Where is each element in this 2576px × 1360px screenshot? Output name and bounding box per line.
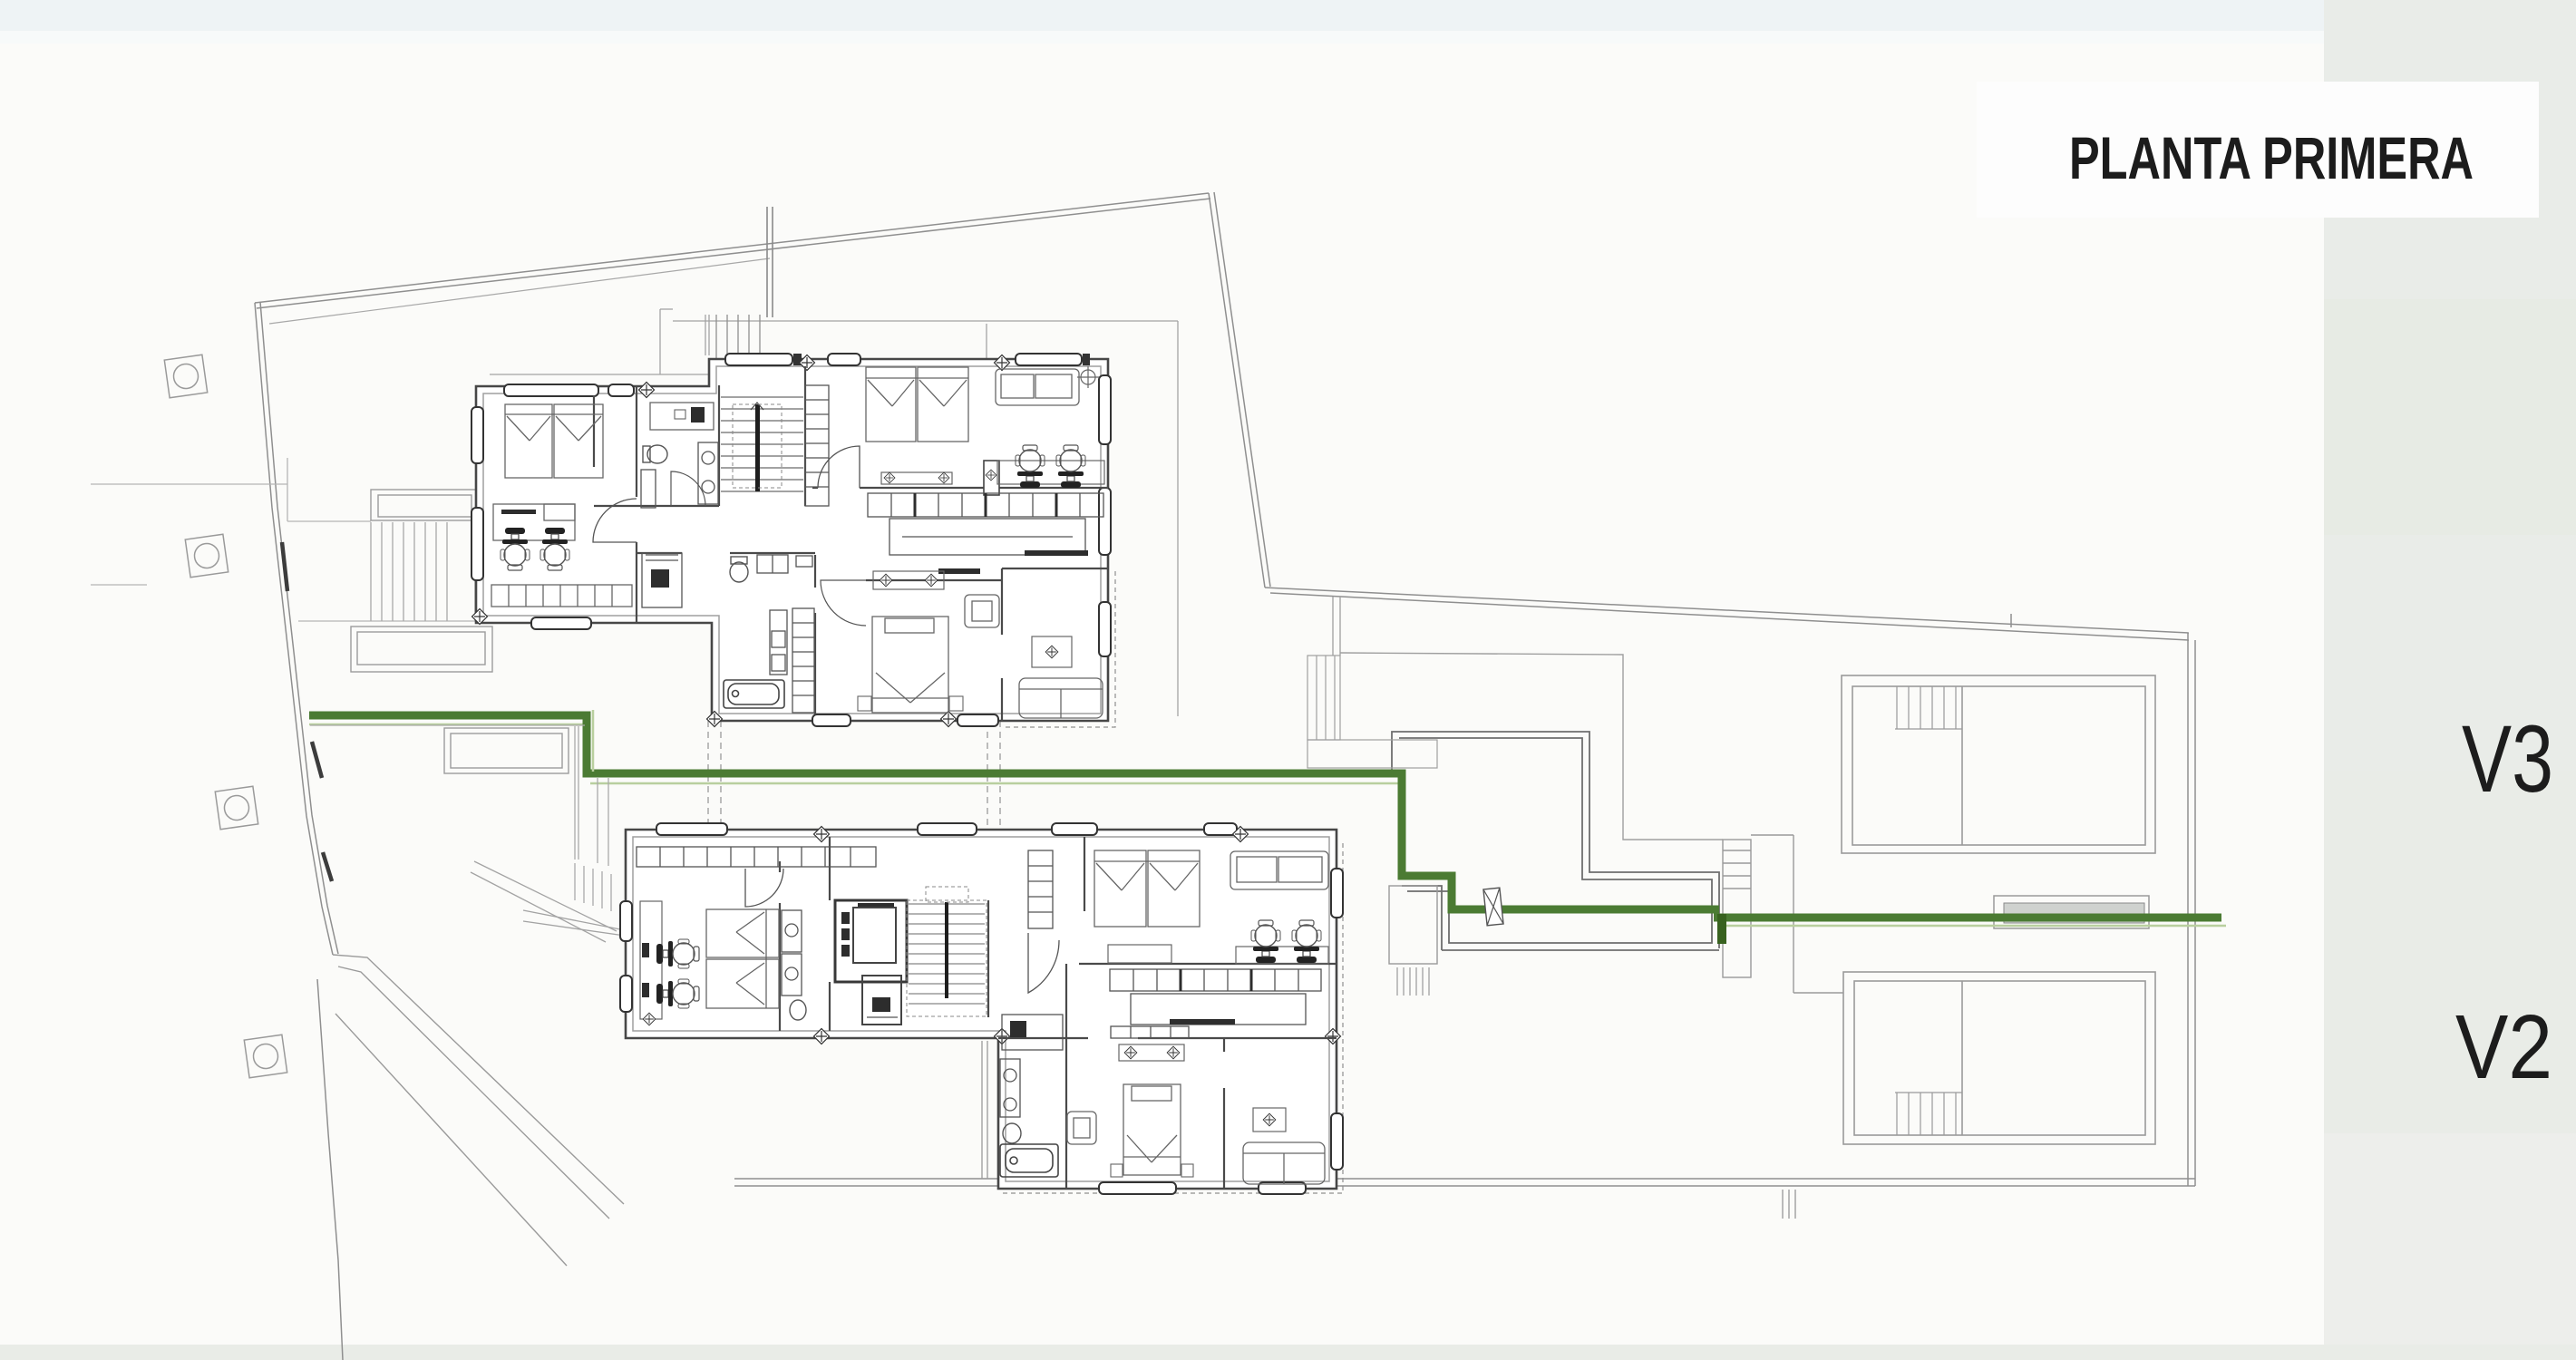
svg-text:V2: V2 bbox=[2455, 996, 2552, 1098]
svg-text:V3: V3 bbox=[2462, 706, 2553, 812]
svg-text:PLANTA PRIMERA: PLANTA PRIMERA bbox=[2069, 124, 2474, 191]
